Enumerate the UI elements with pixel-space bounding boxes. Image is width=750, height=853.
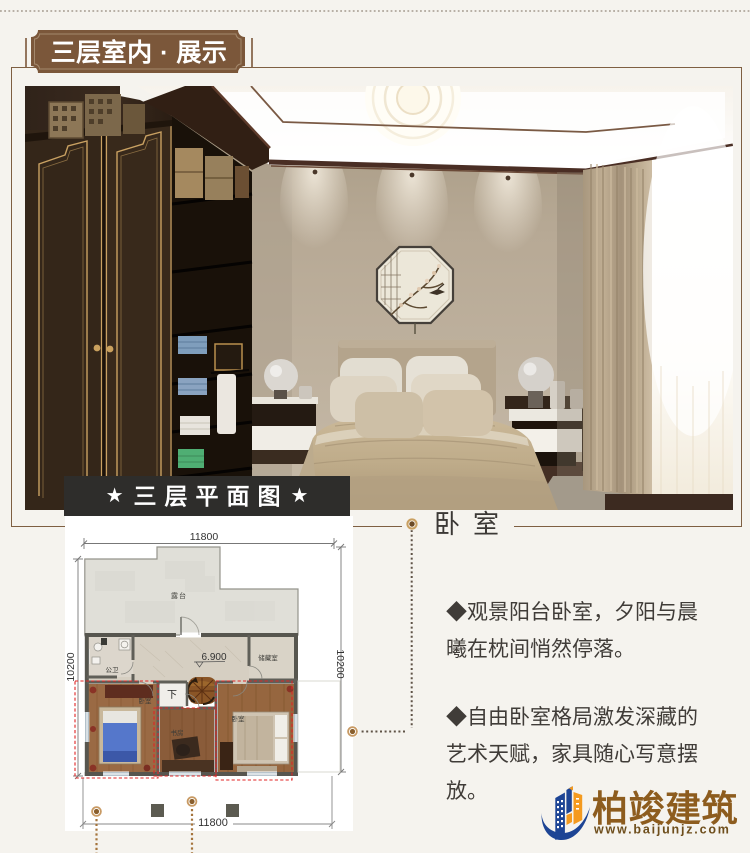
- svg-text:www.baijunjz.com: www.baijunjz.com: [593, 823, 731, 837]
